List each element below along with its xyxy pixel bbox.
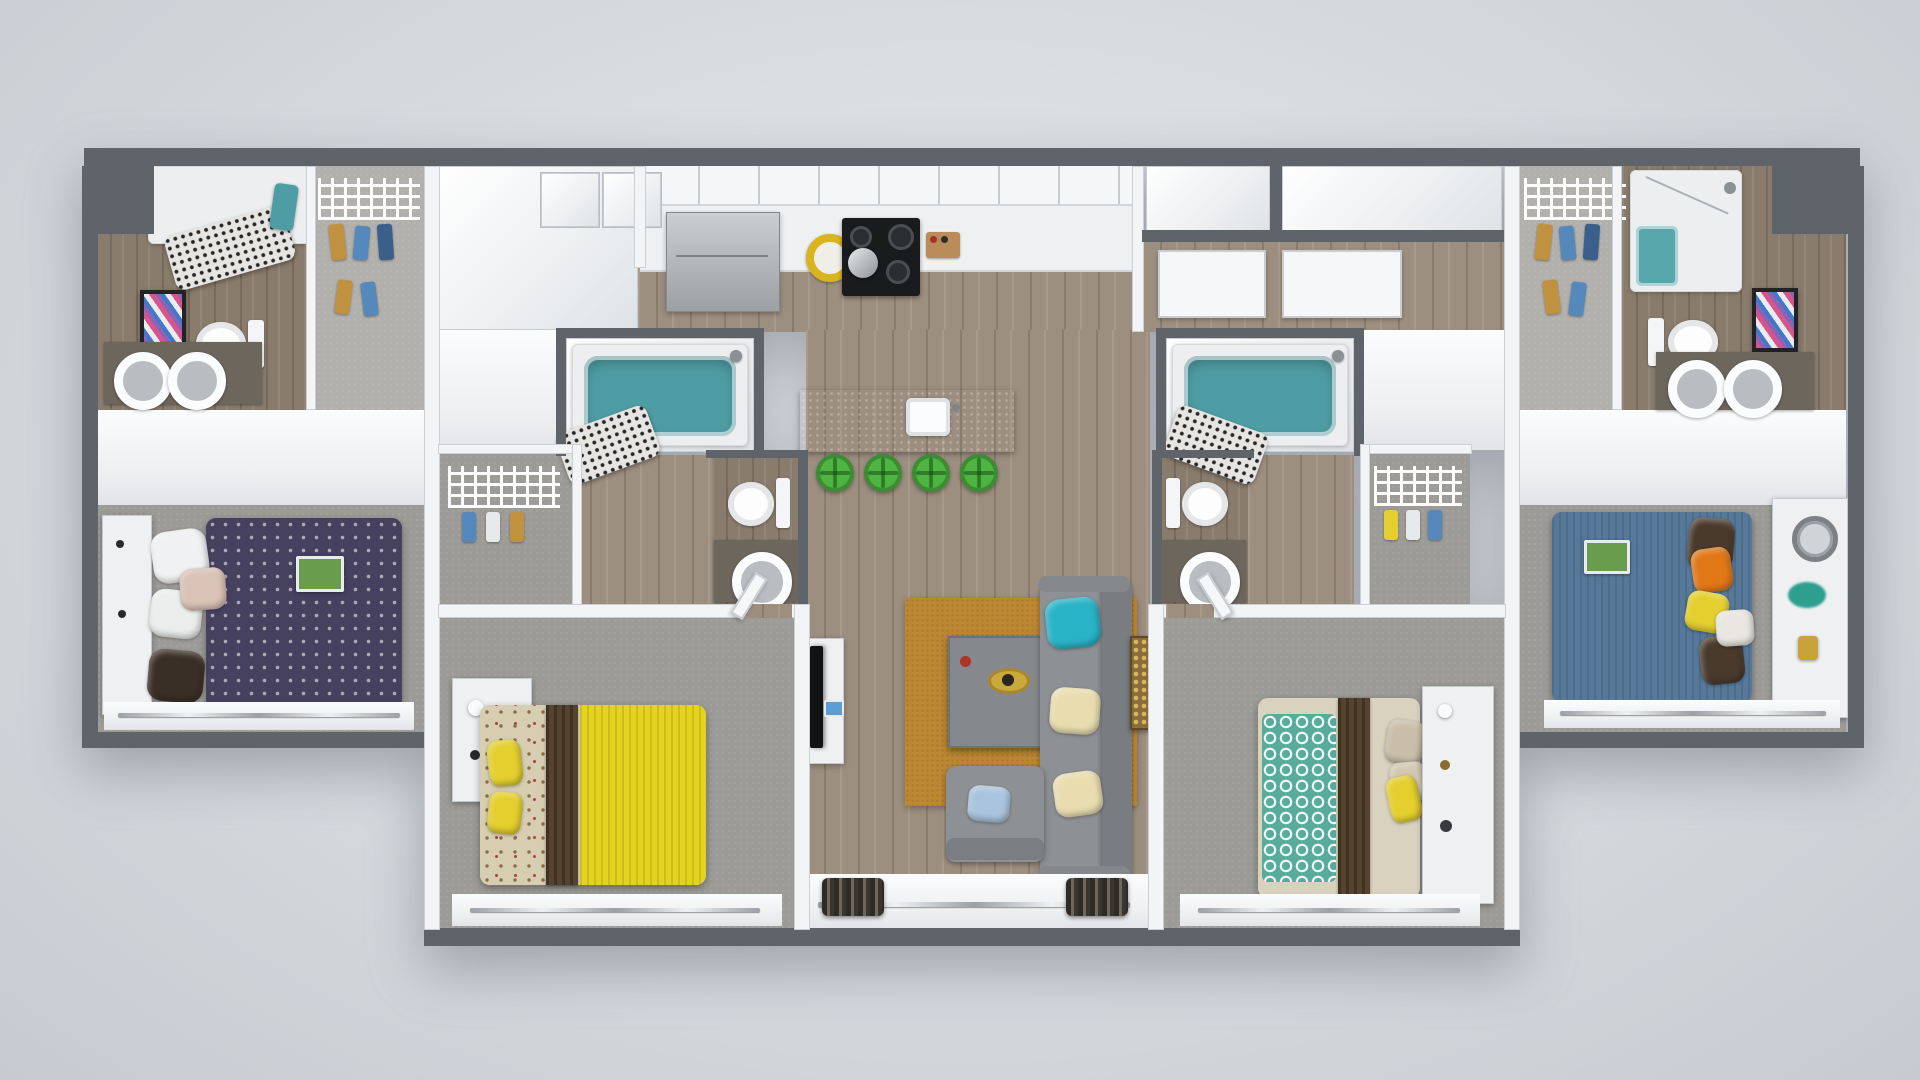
- wall-closet-2-top: [438, 444, 582, 454]
- red-candle: [960, 656, 971, 667]
- shower-head: [730, 350, 742, 362]
- bed-runner-brown: [1338, 698, 1370, 898]
- wall-right: [1848, 166, 1864, 748]
- refrigerator: [666, 212, 780, 312]
- armchair-back: [946, 838, 1044, 860]
- hanging-clothes: [1559, 225, 1577, 260]
- curtain-bundle-right: [1066, 878, 1128, 916]
- upper-cabinets: [640, 166, 1132, 206]
- bedroom-1-wall-face: [96, 410, 424, 505]
- toilet: [1182, 482, 1228, 526]
- hanging-clothes: [510, 512, 524, 542]
- wire-shelf: [318, 178, 420, 220]
- hanging-clothes: [1406, 510, 1420, 540]
- shelf-decor: [1440, 820, 1452, 832]
- bedroom-4-wall-face: [1520, 410, 1846, 505]
- bed-duvet-purple: [206, 518, 402, 710]
- pillow-light-blue: [967, 784, 1012, 824]
- shelf-decor: [116, 540, 124, 548]
- hanging-clothes: [486, 512, 500, 542]
- shower-head: [1724, 182, 1736, 194]
- curtain-rail: [470, 908, 760, 912]
- bed-blanket-yellow: [580, 705, 706, 885]
- wall-closet-3-left: [1360, 444, 1370, 606]
- entry-closet-b: [1282, 166, 1502, 232]
- wall-bedroom-2-right: [794, 604, 810, 930]
- toilet-tank: [776, 478, 790, 528]
- magazine: [296, 556, 344, 592]
- hanging-clothes: [1583, 224, 1600, 261]
- bar-stool: [960, 454, 998, 492]
- wall-bath2-right: [754, 338, 764, 456]
- toilet-tank: [1166, 478, 1180, 528]
- wall-top: [92, 148, 1852, 166]
- wall-bath2-top: [556, 328, 764, 338]
- pantry-cabinet: [540, 172, 600, 228]
- shelf-decor: [118, 610, 126, 618]
- bar-stool: [864, 454, 902, 492]
- burner: [886, 260, 910, 284]
- island-faucet: [952, 404, 960, 412]
- spice-jar: [930, 236, 937, 243]
- wall-bath3-left: [1156, 338, 1166, 456]
- wall-closet-4: [1612, 166, 1622, 410]
- pillow-orange: [1689, 545, 1735, 594]
- wall-art: [1756, 292, 1794, 348]
- hall-wall-face: [438, 330, 558, 455]
- wire-shelf: [448, 466, 560, 508]
- curtain-bundle-left: [822, 878, 884, 916]
- wall-closet-1: [306, 166, 316, 410]
- tv-screen: [810, 646, 823, 748]
- wall-wc1-top: [706, 450, 808, 458]
- shower-floor-teal: [1636, 226, 1678, 286]
- wire-shelf: [1374, 466, 1462, 506]
- bottle: [1002, 674, 1014, 686]
- wall-closet-2-right: [572, 444, 582, 606]
- hanging-clothes: [1428, 510, 1442, 540]
- entry-closet-a: [1146, 166, 1270, 232]
- wall-left-wing-divider: [424, 166, 440, 930]
- wall-left-wing-bottom: [82, 732, 438, 748]
- pillow-yellow: [486, 738, 525, 787]
- wire-shelf: [1524, 178, 1626, 220]
- wall-right-wing-divider: [1504, 166, 1520, 930]
- lamp: [1438, 704, 1452, 718]
- pantry-cabinet: [602, 172, 662, 228]
- pillow-teal: [1044, 595, 1103, 650]
- bar-stool: [816, 454, 854, 492]
- shower-head: [1332, 350, 1344, 362]
- pillow-cream: [1051, 769, 1105, 819]
- wall-right-wing-bottom: [1506, 732, 1862, 748]
- hanging-clothes: [1384, 510, 1398, 540]
- curtain-rail: [1560, 711, 1826, 715]
- hanging-clothes: [353, 225, 371, 260]
- pillow-cream: [1048, 686, 1101, 735]
- headboard-shelf: [102, 515, 152, 715]
- wall-art-frame: [1752, 288, 1798, 352]
- wall-closet-3-top: [1360, 444, 1472, 454]
- pillow-yellow: [486, 790, 524, 835]
- bed-runner-brown: [546, 705, 578, 885]
- right-wall-face: [1362, 330, 1504, 450]
- console-decor: [824, 700, 844, 717]
- dresser-decor: [470, 750, 480, 760]
- wall-wc3-left: [1152, 450, 1162, 608]
- gold-jar: [1798, 636, 1818, 660]
- pillow-brown: [146, 648, 206, 705]
- floor-plan-render: [0, 0, 1920, 1080]
- wall-kitchen-left: [634, 166, 646, 268]
- wall-bath3-right: [1354, 338, 1364, 456]
- pillow-tan: [1383, 718, 1427, 767]
- doorway-bedroom-2: [744, 604, 792, 618]
- vanity-sink-left: [1668, 360, 1726, 418]
- wall-left: [82, 166, 98, 748]
- cooking-pot: [848, 248, 878, 278]
- shelf-decor: [1440, 760, 1450, 770]
- wall-bath3-top: [1156, 328, 1364, 338]
- wall-center-bottom: [424, 928, 1520, 946]
- vanity-sink-right: [1724, 360, 1782, 418]
- round-mirror: [1792, 516, 1838, 562]
- teal-plant: [1788, 582, 1826, 608]
- wall-bedroom-3-left: [1148, 604, 1164, 930]
- pillow-white-patterned: [1715, 609, 1755, 648]
- door-panel: [1158, 250, 1266, 318]
- door-panel: [1282, 250, 1402, 318]
- wall-kitchen-right: [1132, 166, 1144, 332]
- toilet: [728, 482, 774, 526]
- wall-wc3-top: [1152, 450, 1254, 458]
- burner: [888, 224, 914, 250]
- hanging-clothes: [462, 512, 476, 542]
- island-sink: [906, 398, 950, 436]
- curtain-rail: [118, 713, 400, 717]
- bar-stool: [912, 454, 950, 492]
- sofa-back: [1102, 581, 1132, 879]
- vanity-sink-right: [168, 352, 226, 410]
- wall-entry-divider: [1270, 166, 1282, 238]
- hall-3-floor: [1248, 455, 1354, 605]
- pillow-blush: [179, 566, 228, 611]
- bed-quilt-teal: [1262, 714, 1336, 882]
- curtain-rail: [1198, 908, 1460, 912]
- spice-jar: [941, 236, 948, 243]
- doorway-bedroom-3: [1166, 604, 1214, 618]
- vanity-sink-left: [114, 352, 172, 410]
- burner: [850, 226, 872, 248]
- headboard-storage: [1422, 686, 1494, 904]
- hanging-clothes: [377, 224, 394, 261]
- wall-entry-closets: [1142, 230, 1504, 242]
- wall-bath2-left: [556, 338, 566, 456]
- sofa-armrest: [1038, 576, 1130, 592]
- wall-corner-block-right: [1772, 148, 1860, 234]
- magazine: [1584, 540, 1630, 574]
- fridge-seam: [676, 255, 768, 257]
- wall-wc1-right: [798, 450, 808, 608]
